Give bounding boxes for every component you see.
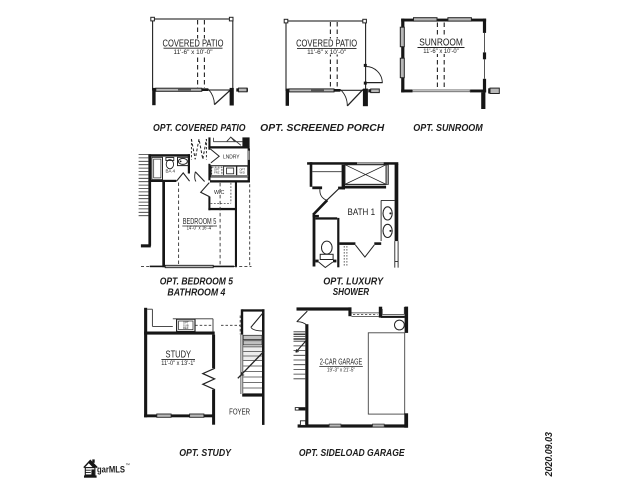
svg-text:BATHROOM 4: BATHROOM 4 bbox=[167, 288, 225, 299]
svg-text:W/D: W/D bbox=[239, 170, 244, 174]
svg-text:BATH 1: BATH 1 bbox=[348, 207, 376, 218]
svg-text:COVERED PATIO: COVERED PATIO bbox=[163, 38, 224, 49]
svg-text:STUDY: STUDY bbox=[166, 350, 192, 361]
svg-text:WIC: WIC bbox=[214, 190, 225, 196]
svg-text:11'-6" x 10'-0": 11'-6" x 10'-0" bbox=[307, 49, 346, 56]
svg-text:19'-3" x 21'-5": 19'-3" x 21'-5" bbox=[327, 367, 355, 373]
svg-text:11'-6" x 10'-0": 11'-6" x 10'-0" bbox=[423, 48, 459, 55]
svg-text:11'-6" x 10'-0": 11'-6" x 10'-0" bbox=[174, 49, 213, 56]
svg-text:REF: REF bbox=[183, 326, 189, 330]
svg-text:SUNROOM: SUNROOM bbox=[419, 36, 463, 48]
svg-text:2020.09.03: 2020.09.03 bbox=[544, 432, 555, 478]
svg-text:COVERED PATIO: COVERED PATIO bbox=[296, 38, 357, 49]
svg-text:SHOWER: SHOWER bbox=[333, 287, 370, 298]
svg-text:2-CAR GARAGE: 2-CAR GARAGE bbox=[320, 357, 363, 367]
svg-text:garMLS: garMLS bbox=[97, 465, 125, 476]
svg-text:OPT. SUNROOM: OPT. SUNROOM bbox=[413, 123, 483, 134]
svg-text:OPT. SIDELOAD GARAGE: OPT. SIDELOAD GARAGE bbox=[299, 448, 406, 459]
svg-text:BA 4: BA 4 bbox=[166, 168, 176, 173]
svg-text:11'-0" x 13'-1": 11'-0" x 13'-1" bbox=[161, 361, 195, 367]
svg-text:LNDRY: LNDRY bbox=[223, 154, 240, 160]
svg-text:FRZ: FRZ bbox=[214, 171, 220, 175]
svg-text:™: ™ bbox=[126, 463, 131, 468]
svg-text:OPT. SCREENED PORCH: OPT. SCREENED PORCH bbox=[260, 123, 385, 134]
svg-text:OPT. STUDY: OPT. STUDY bbox=[179, 448, 232, 459]
svg-text:14'-0" x 16'-4": 14'-0" x 16'-4" bbox=[187, 226, 213, 232]
svg-text:OPT. BEDROOM 5: OPT. BEDROOM 5 bbox=[160, 276, 233, 287]
svg-text:FOYER: FOYER bbox=[229, 408, 250, 417]
svg-text:OPT. LUXURY: OPT. LUXURY bbox=[323, 277, 384, 288]
svg-text:OPT. COVERED PATIO: OPT. COVERED PATIO bbox=[153, 123, 246, 134]
